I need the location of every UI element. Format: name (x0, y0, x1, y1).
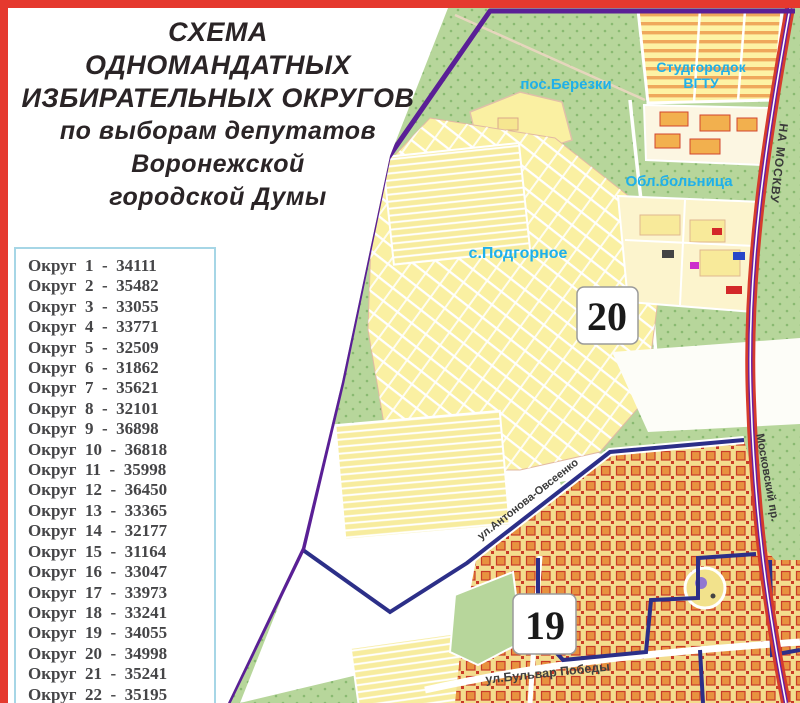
label-vgtu: ВГТУ (683, 75, 719, 91)
legend-row: Округ 10 - 36818 (28, 440, 214, 460)
legend-row: Округ 6 - 31862 (28, 358, 214, 378)
legend-row: Округ 13 - 33365 (28, 501, 214, 521)
legend-row: Округ 18 - 33241 (28, 603, 214, 623)
district-19-number: 19 (525, 603, 565, 648)
legend-row: Округ 5 - 32509 (28, 338, 214, 358)
circle-plaza (685, 568, 725, 608)
legend-row: Округ 15 - 31164 (28, 542, 214, 562)
district-badge-20: 20 (577, 287, 638, 344)
legend-row: Округ 7 - 35621 (28, 378, 214, 398)
label-studgorodok: Студгородок (656, 59, 746, 75)
title-line-1: СХЕМА (6, 16, 430, 49)
label-hospital: Обл.больница (625, 173, 733, 190)
legend-row: Округ 1 - 34111 (28, 256, 214, 276)
garden-plots-south (335, 411, 509, 540)
title-line-5: Воронежской (6, 148, 430, 181)
map-title: СХЕМА ОДНОМАНДАТНЫХ ИЗБИРАТЕЛЬНЫХ ОКРУГО… (6, 16, 430, 214)
plaza-dot (711, 594, 716, 599)
legend-list: Округ 1 - 34111Округ 2 - 35482Округ 3 - … (14, 247, 216, 703)
legend-row: Округ 19 - 34055 (28, 623, 214, 643)
legend-row: Округ 22 - 35195 (28, 685, 214, 703)
legend-row: Округ 20 - 34998 (28, 644, 214, 664)
legend-row: Округ 17 - 33973 (28, 583, 214, 603)
label-berezki: пос.Березки (520, 76, 611, 93)
scanned-map-page: 20 19 пос.Березки Студгородок ВГТУ Обл.б… (0, 0, 800, 703)
legend-row: Округ 16 - 33047 (28, 562, 214, 582)
legend-row: Округ 9 - 36898 (28, 419, 214, 439)
legend-row: Округ 2 - 35482 (28, 276, 214, 296)
legend-row: Округ 14 - 32177 (28, 521, 214, 541)
berezki-building (498, 118, 518, 130)
legend-row: Округ 3 - 33055 (28, 297, 214, 317)
legend-row: Округ 8 - 32101 (28, 399, 214, 419)
legend-row: Округ 12 - 36450 (28, 480, 214, 500)
district-badge-19: 19 (513, 594, 576, 654)
title-line-4: по выборам депутатов (6, 115, 430, 148)
legend-row: Округ 21 - 35241 (28, 664, 214, 684)
district-20-number: 20 (587, 294, 627, 339)
frame-border-left (0, 0, 8, 703)
frame-border-top (0, 0, 800, 8)
title-line-3: ИЗБИРАТЕЛЬНЫХ ОКРУГОВ (6, 82, 430, 115)
label-podgornoe: с.Подгорное (469, 245, 568, 262)
title-line-2: ОДНОМАНДАТНЫХ (6, 49, 430, 82)
legend-row: Округ 11 - 35998 (28, 460, 214, 480)
legend-row: Округ 4 - 33771 (28, 317, 214, 337)
title-line-6: городской Думы (6, 181, 430, 214)
